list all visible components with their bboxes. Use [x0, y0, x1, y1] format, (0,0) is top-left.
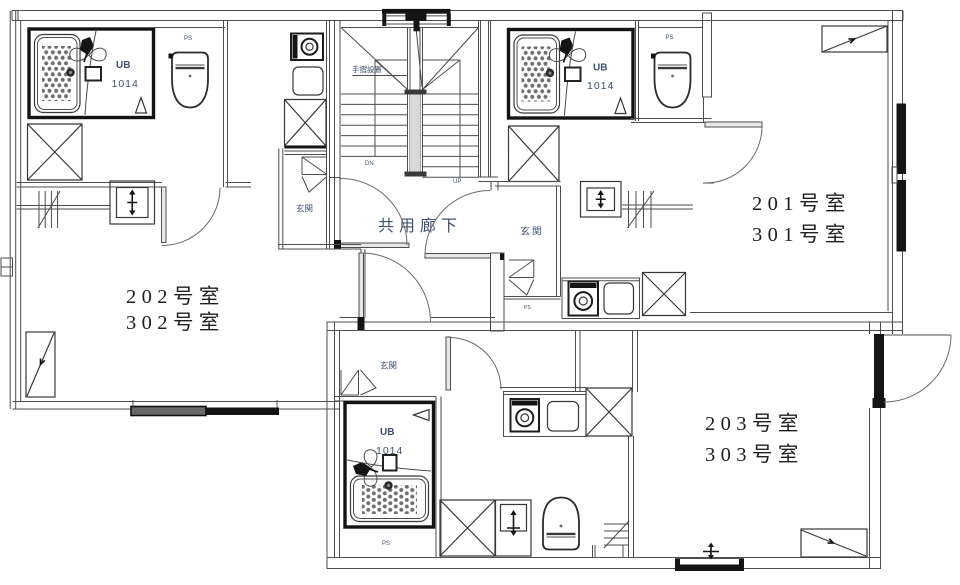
svg-text:1014: 1014	[376, 445, 403, 457]
svg-text:202号室: 202号室	[126, 285, 225, 308]
svg-text:PS: PS	[524, 305, 531, 311]
svg-text:玄関: 玄関	[296, 204, 313, 214]
svg-text:201号室: 201号室	[752, 192, 851, 215]
svg-text:DN: DN	[365, 161, 374, 167]
svg-text:UB: UB	[380, 427, 394, 438]
svg-text:301号室: 301号室	[752, 223, 851, 246]
svg-text:PS: PS	[382, 541, 390, 547]
svg-text:1014: 1014	[587, 80, 614, 92]
svg-text:1014: 1014	[112, 78, 139, 90]
svg-text:PS: PS	[666, 35, 674, 41]
svg-text:PS: PS	[184, 36, 192, 42]
svg-text:玄関: 玄関	[521, 226, 544, 238]
svg-text:UB: UB	[116, 60, 130, 71]
svg-text:303号室: 303号室	[705, 443, 804, 466]
svg-text:共用廊下: 共用廊下	[378, 217, 462, 235]
svg-text:玄関: 玄関	[380, 361, 397, 371]
svg-text:UP: UP	[453, 179, 461, 185]
svg-text:UB: UB	[593, 63, 607, 74]
svg-text:手摺設置: 手摺設置	[352, 64, 382, 74]
svg-text:203号室: 203号室	[705, 412, 804, 435]
svg-text:302号室: 302号室	[126, 311, 225, 334]
